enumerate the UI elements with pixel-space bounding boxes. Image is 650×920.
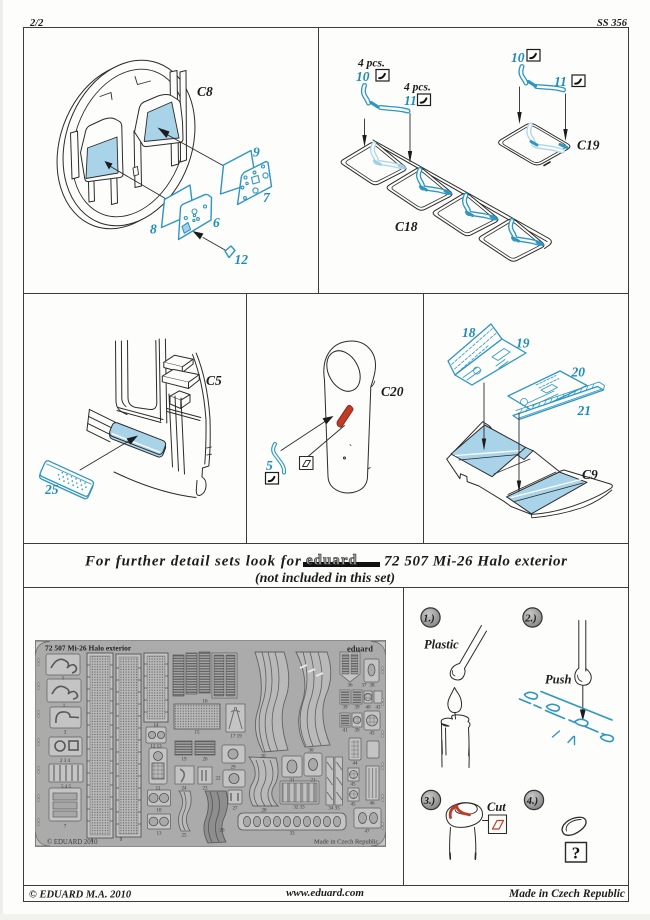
svg-text:19: 19 [516, 336, 530, 351]
svg-text:Cut: Cut [487, 800, 506, 814]
svg-text:41: 41 [343, 729, 349, 734]
svg-text:31: 31 [290, 779, 296, 784]
svg-text:6: 6 [213, 215, 220, 230]
svg-text:39: 39 [355, 729, 361, 734]
svg-text:25: 25 [182, 834, 188, 839]
svg-text:20: 20 [571, 365, 586, 380]
svg-text:C18: C18 [395, 219, 418, 234]
svg-text:26: 26 [220, 829, 226, 834]
svg-text:45: 45 [351, 803, 357, 808]
svg-text:47: 47 [365, 830, 371, 835]
svg-text:33: 33 [290, 832, 296, 837]
svg-text:10: 10 [511, 50, 525, 65]
svg-text:40: 40 [366, 706, 372, 711]
svg-text:34 35: 34 35 [328, 807, 340, 812]
svg-text:22: 22 [216, 777, 222, 782]
svg-text:8: 8 [150, 222, 157, 237]
svg-text:21: 21 [577, 403, 592, 418]
svg-text:25: 25 [44, 482, 59, 497]
svg-text:15: 15 [195, 731, 201, 736]
svg-text:C8: C8 [197, 84, 213, 99]
svg-text:37: 37 [362, 684, 368, 689]
svg-text:3.): 3.) [423, 796, 435, 807]
svg-text:4.): 4.) [526, 796, 538, 807]
svg-text:Push: Push [545, 673, 571, 687]
svg-text:43: 43 [370, 732, 376, 737]
svg-text:16: 16 [203, 700, 209, 705]
svg-text:39: 39 [355, 706, 361, 711]
svg-text:12 13: 12 13 [150, 745, 162, 750]
svg-text:C20: C20 [381, 384, 404, 399]
svg-text:9: 9 [253, 145, 260, 160]
svg-text:11: 11 [404, 93, 417, 108]
svg-text:17 19: 17 19 [230, 735, 242, 740]
svg-text:Made in Czech Republic: Made in Czech Republic [314, 839, 379, 846]
svg-text:4 pcs.: 4 pcs. [403, 82, 431, 94]
svg-text:C9: C9 [582, 467, 598, 482]
svg-text:11: 11 [156, 787, 161, 792]
svg-text:45: 45 [351, 783, 357, 788]
svg-text:© EDUARD M.A. 2010: © EDUARD M.A. 2010 [29, 890, 132, 901]
svg-text:39: 39 [343, 706, 349, 711]
svg-text:C19: C19 [577, 138, 600, 153]
svg-text:72 507 Mi-26 Halo exterior: 72 507 Mi-26 Halo exterior [384, 554, 567, 570]
svg-text:14: 14 [154, 724, 160, 729]
svg-text:2.): 2.) [524, 614, 536, 625]
svg-text:10: 10 [356, 69, 370, 84]
svg-text:46: 46 [370, 802, 376, 807]
svg-text:1.): 1.) [423, 614, 434, 625]
svg-text:eduard: eduard [306, 553, 358, 569]
svg-text:Plastic: Plastic [424, 638, 459, 652]
svg-text:23: 23 [203, 787, 209, 792]
svg-text:5: 5 [266, 458, 273, 473]
svg-text:www.eduard.com: www.eduard.com [286, 887, 364, 899]
svg-text:SS 356: SS 356 [597, 18, 628, 29]
svg-text:Made in Czech Republic: Made in Czech Republic [508, 888, 625, 900]
svg-text:29: 29 [231, 766, 237, 771]
svg-text:2 3 4: 2 3 4 [60, 759, 71, 764]
svg-text:43: 43 [376, 706, 382, 711]
svg-text:20: 20 [203, 758, 209, 763]
svg-text:36: 36 [348, 684, 354, 689]
svg-text:C5: C5 [206, 373, 222, 388]
svg-text:18: 18 [462, 325, 476, 340]
svg-text:13: 13 [157, 832, 163, 837]
svg-text:?: ? [572, 844, 581, 863]
svg-text:2/2: 2/2 [29, 18, 44, 29]
svg-text:5 4 5: 5 4 5 [61, 785, 72, 790]
svg-text:28: 28 [262, 809, 268, 814]
svg-text:20: 20 [261, 755, 267, 760]
svg-text:(not included in this set): (not included in this set) [255, 571, 395, 586]
svg-text:72 507 Mi-26 Halo exterior: 72 507 Mi-26 Halo exterior [45, 644, 132, 653]
svg-text:38: 38 [370, 684, 376, 689]
svg-text:19: 19 [182, 758, 188, 763]
svg-text:27: 27 [233, 807, 239, 812]
svg-text:For further detail sets look f: For further detail sets look for [84, 554, 302, 570]
svg-text:30: 30 [309, 749, 315, 754]
svg-text:4 pcs.: 4 pcs. [357, 58, 385, 70]
svg-text:44: 44 [353, 762, 359, 767]
svg-text:11: 11 [554, 74, 567, 89]
svg-text:32 33: 32 33 [293, 806, 305, 811]
svg-text:12: 12 [235, 252, 249, 267]
svg-text:24: 24 [182, 787, 188, 792]
svg-text:21: 21 [311, 779, 317, 784]
svg-text:10: 10 [157, 809, 163, 814]
